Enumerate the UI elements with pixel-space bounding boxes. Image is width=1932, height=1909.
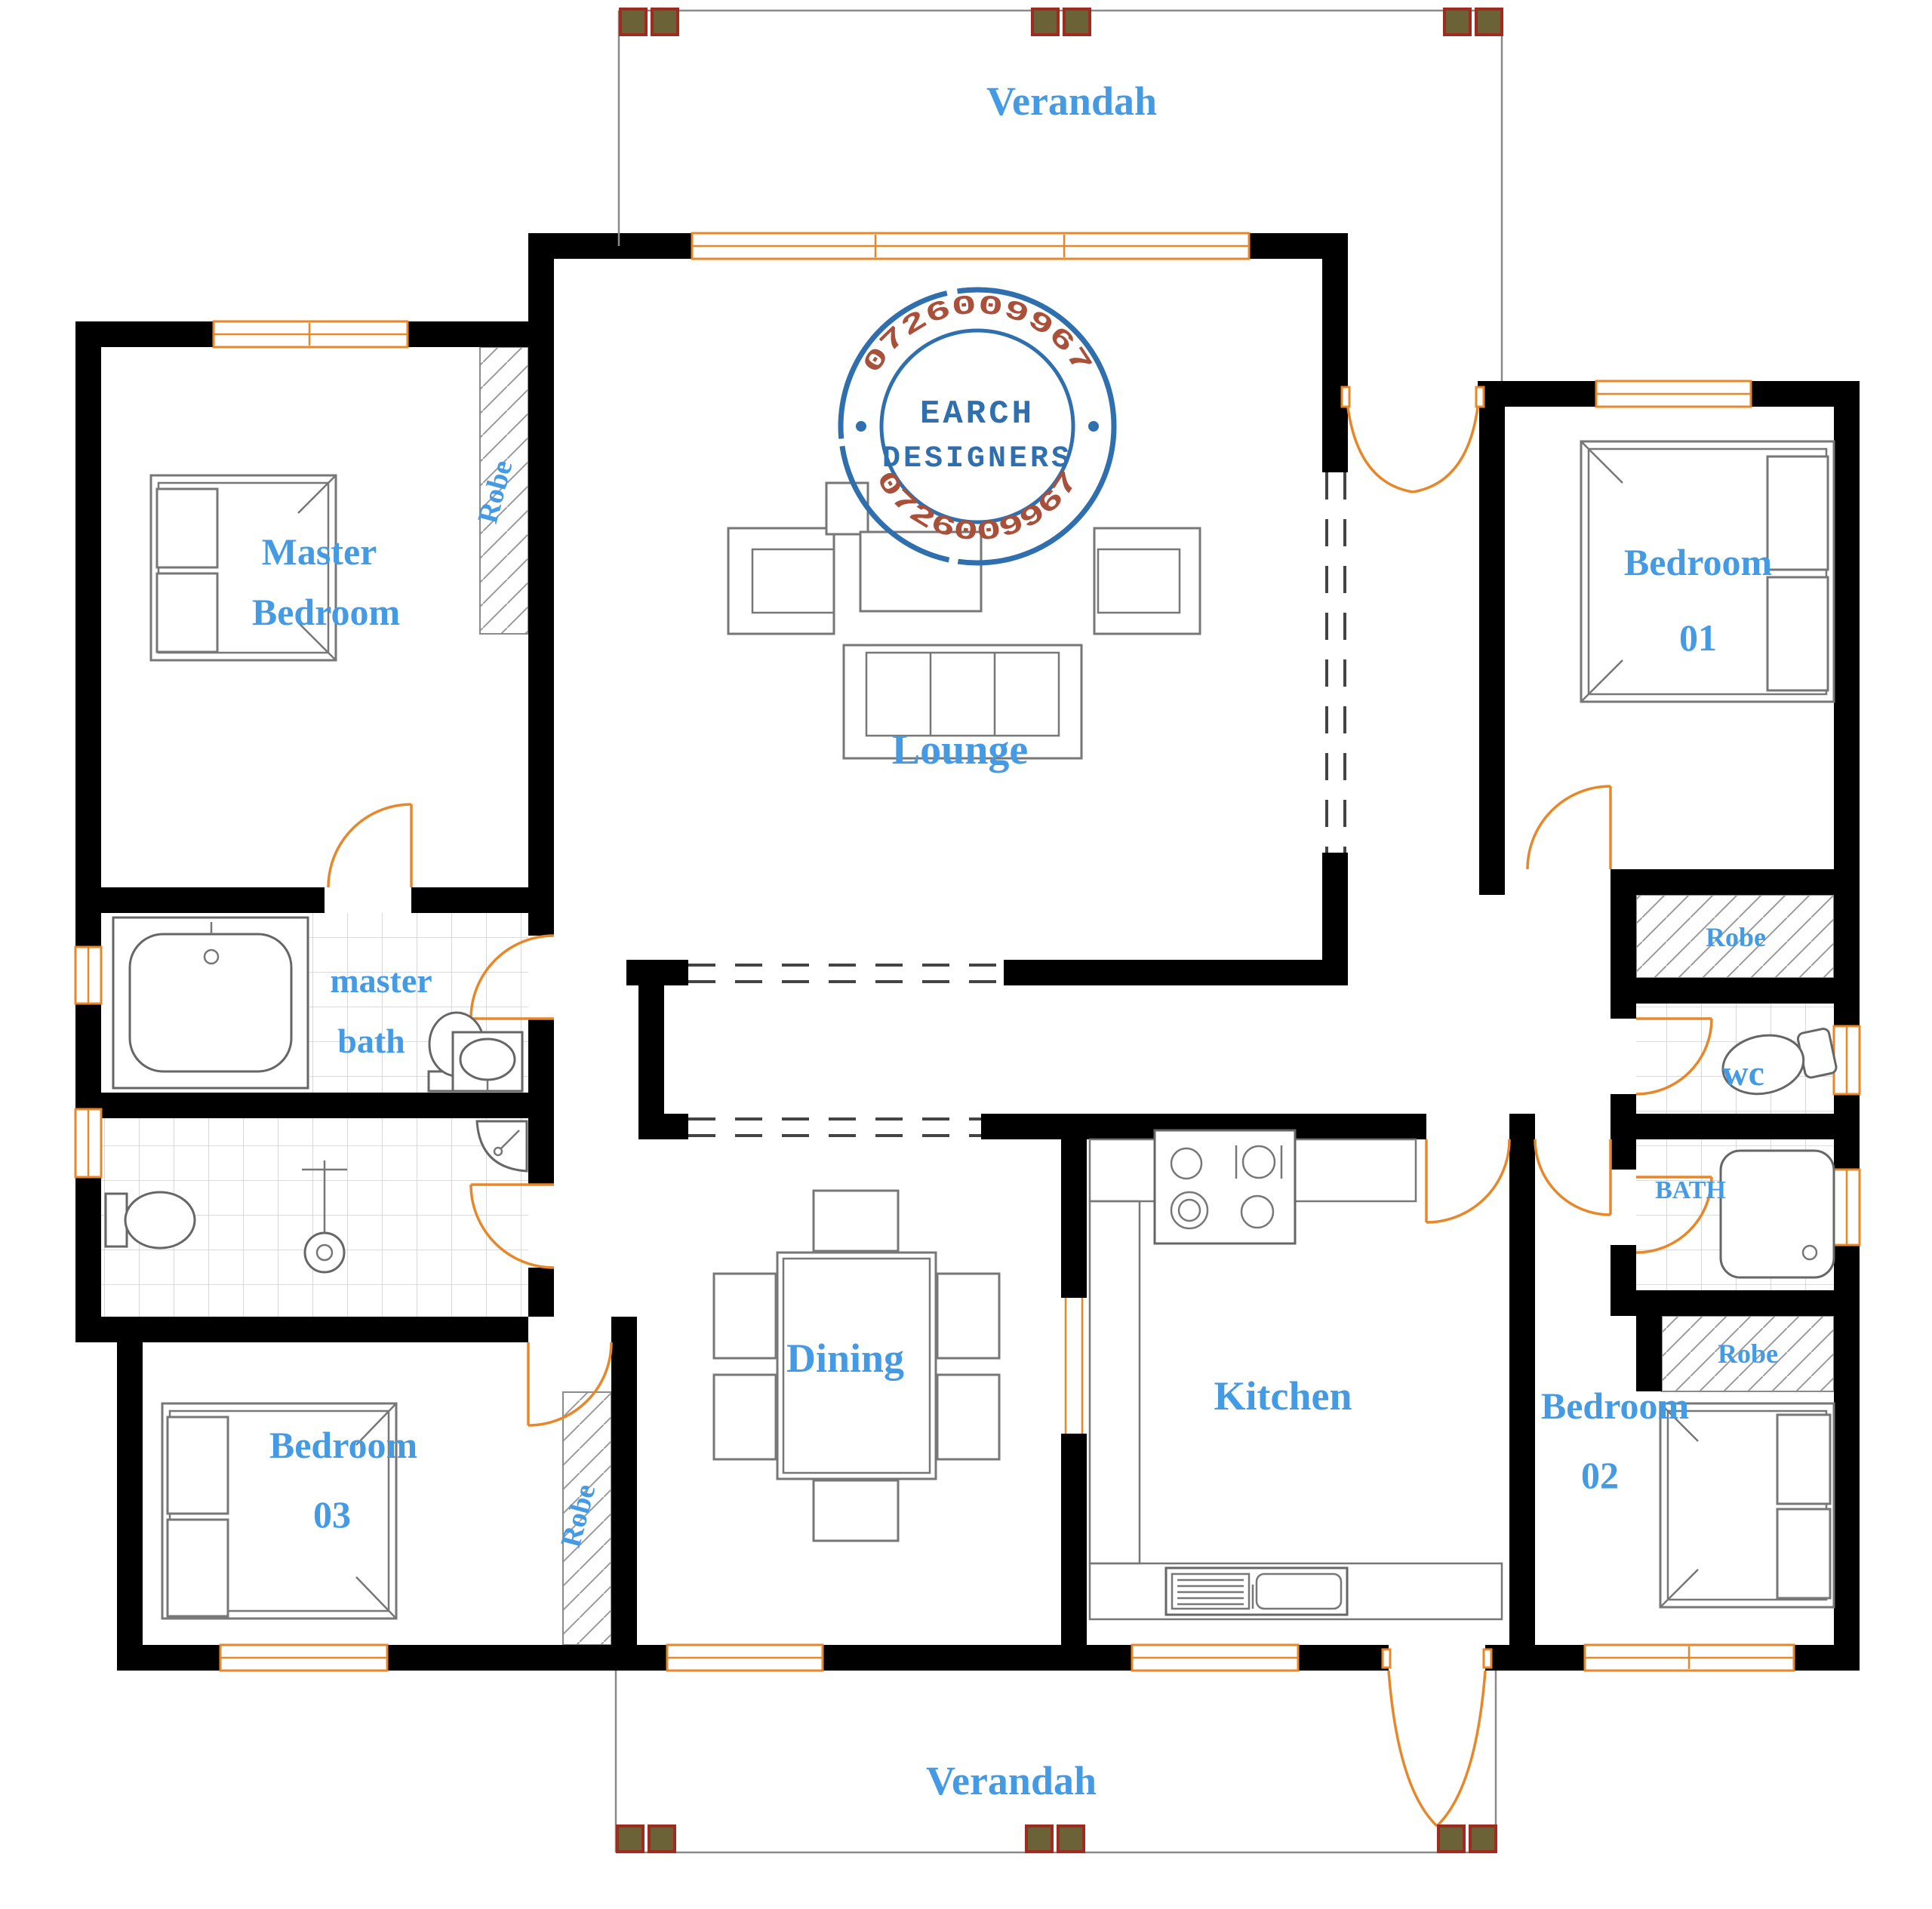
- column: [649, 1826, 675, 1852]
- door-bedroom02: [1535, 1139, 1611, 1215]
- window-bedroom01: [1596, 381, 1751, 407]
- column: [1470, 1826, 1496, 1852]
- lounge-side-table: [826, 483, 868, 534]
- column: [1064, 9, 1090, 35]
- bedroom01-label-line2: 01: [1679, 616, 1717, 659]
- stamp: 0726009967 0726009967 EARCH DESIGNERS: [841, 290, 1114, 563]
- window-lounge: [692, 233, 1249, 259]
- column: [1476, 9, 1502, 35]
- master-bedroom-label-line2: Bedroom: [252, 591, 400, 633]
- column: [1438, 1826, 1464, 1852]
- column: [1026, 1826, 1052, 1852]
- window-wc: [1834, 1026, 1860, 1094]
- window-bedroom03: [220, 1645, 387, 1671]
- master-bath-label-line1: master: [330, 961, 432, 1000]
- window-bedroom02: [1585, 1645, 1794, 1671]
- bedroom02-label-line1: Bedroom: [1541, 1385, 1689, 1427]
- column: [620, 9, 646, 35]
- window-kitchen: [1132, 1645, 1298, 1671]
- stamp-name-line1: EARCH: [920, 395, 1035, 433]
- bath-label: BATH: [1655, 1176, 1726, 1204]
- bed-bedroom02: [1660, 1403, 1834, 1607]
- door-rear-double: [1383, 1649, 1491, 1826]
- master-bath-label-line2: bath: [337, 1022, 405, 1060]
- robe-bedroom02-label: Robe: [1718, 1339, 1778, 1369]
- verandah-bottom-label: Verandah: [926, 1758, 1097, 1803]
- door-entry-double: [1342, 387, 1484, 492]
- master-bedroom-label-line1: Master: [262, 530, 377, 573]
- column: [652, 9, 678, 35]
- shower-bath: [1721, 1151, 1834, 1277]
- bedroom03-label-line2: 03: [313, 1493, 351, 1535]
- bedroom03-label-line1: Bedroom: [269, 1424, 417, 1466]
- kitchen-label: Kitchen: [1214, 1373, 1352, 1419]
- column: [617, 1826, 643, 1852]
- column: [1032, 9, 1058, 35]
- column: [1058, 1826, 1084, 1852]
- floor-plan-canvas: 0726009967 0726009967 EARCH DESIGNERS Ve…: [0, 0, 1932, 1909]
- bedroom01-label-line1: Bedroom: [1624, 541, 1772, 583]
- window-bath: [1834, 1170, 1860, 1245]
- bedroom02-label-line2: 02: [1581, 1454, 1619, 1496]
- door-bedroom01: [1527, 786, 1611, 869]
- sink-masterbath: [453, 1032, 522, 1091]
- lounge-armchair-right: [1094, 528, 1200, 634]
- wc-label: wc: [1722, 1053, 1764, 1093]
- verandah-top-label: Verandah: [986, 78, 1157, 124]
- window-master-bedroom: [214, 321, 408, 347]
- window-dining: [667, 1645, 823, 1671]
- kitchen-stove: [1155, 1130, 1295, 1243]
- bathtub: [113, 918, 308, 1088]
- lounge-label: Lounge: [892, 727, 1029, 773]
- stamp-dot-right: [1088, 421, 1099, 432]
- lounge-armchair-left: [728, 528, 834, 634]
- window-masterbath-upper: [75, 947, 101, 1004]
- column: [1444, 9, 1470, 35]
- window-masterbath-lower: [75, 1109, 101, 1177]
- dining-label: Dining: [786, 1336, 904, 1381]
- door-master-bedroom: [328, 804, 411, 887]
- toilet-lowerbath: [106, 1192, 195, 1248]
- stamp-name-line2: DESIGNERS: [882, 442, 1072, 476]
- kitchen-sink: [1166, 1568, 1347, 1615]
- door-kitchen: [1426, 1139, 1509, 1222]
- robe-bedroom01-label: Robe: [1706, 922, 1766, 952]
- stamp-dot-left: [856, 421, 866, 432]
